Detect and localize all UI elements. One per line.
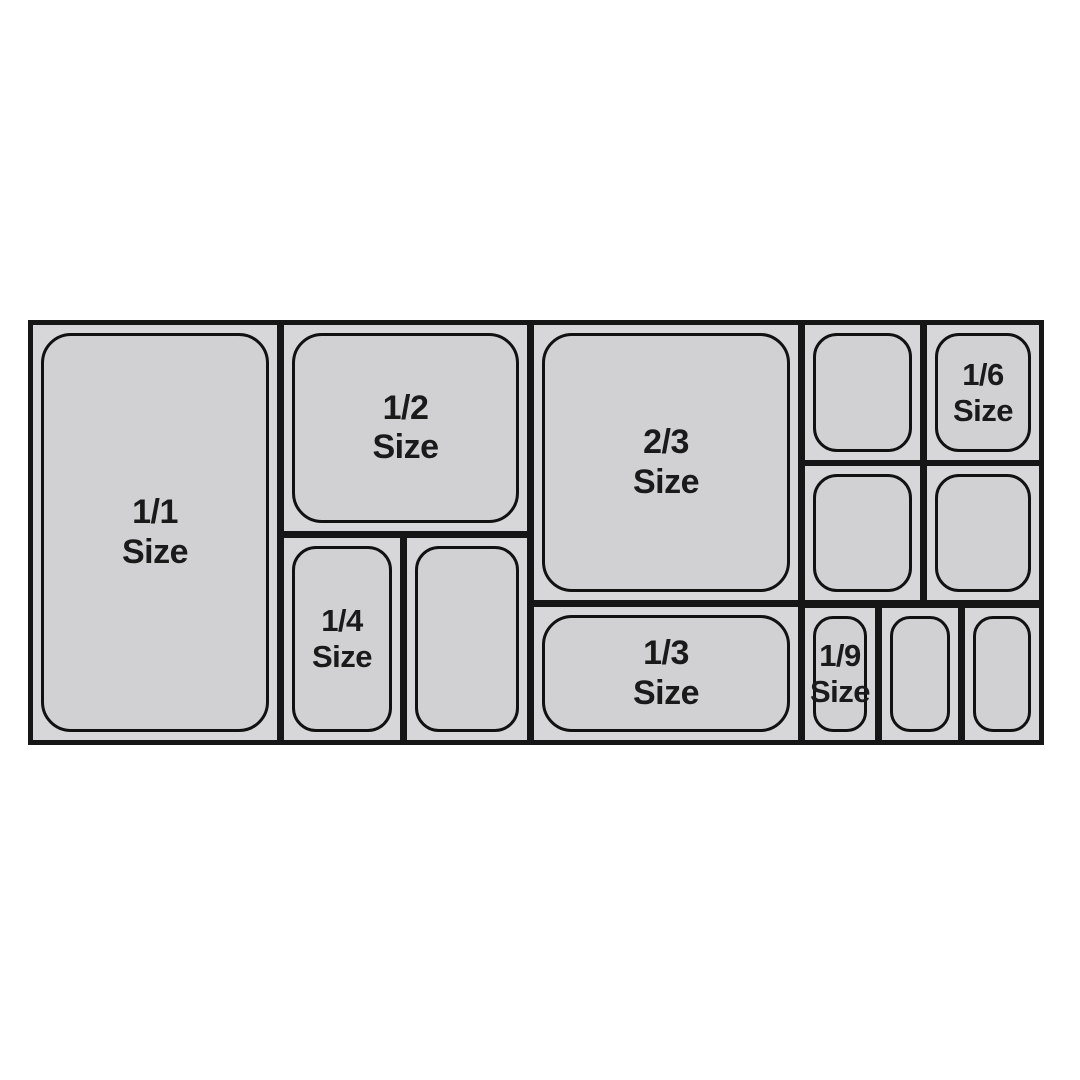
pan-1-9-word: Size <box>810 674 870 710</box>
pan-1-1: 1/1 Size <box>41 333 269 732</box>
pan-1-6-bottom-right <box>935 474 1031 592</box>
pan-1-6-top-left <box>813 333 912 452</box>
pan-cell-1-6-bottom-right <box>927 466 1039 600</box>
pan-1-1-fraction: 1/1 <box>122 493 188 532</box>
pan-1-6-fraction: 1/6 <box>953 357 1013 393</box>
pan-cell-1-9-labeled: 1/9 Size <box>805 608 875 740</box>
pan-1-2: 1/2 Size <box>292 333 519 523</box>
pan-cell-1-4-unlabeled <box>407 538 527 740</box>
pan-cell-1-4-labeled: 1/4 Size <box>284 538 400 740</box>
pan-cell-1-2: 1/2 Size <box>284 325 527 531</box>
pan-1-6-bottom-left <box>813 474 912 592</box>
pan-1-4-word: Size <box>312 639 372 675</box>
pan-cell-1-3: 1/3 Size <box>534 607 798 740</box>
pan-1-2-label: 1/2 Size <box>372 389 438 468</box>
pan-1-9-label: 1/9 Size <box>810 638 870 710</box>
pan-cell-1-6-top-left <box>805 325 920 460</box>
pan-1-4-fraction: 1/4 <box>312 603 372 639</box>
pan-1-6-word: Size <box>953 393 1013 429</box>
pan-1-4: 1/4 Size <box>292 546 392 732</box>
pan-cell-1-1: 1/1 Size <box>33 325 277 740</box>
pan-1-2-fraction: 1/2 <box>372 389 438 428</box>
pan-1-6: 1/6 Size <box>935 333 1031 452</box>
pan-1-3-fraction: 1/3 <box>633 634 699 673</box>
pan-cell-1-6-bottom-left <box>805 466 920 600</box>
pan-1-3: 1/3 Size <box>542 615 790 732</box>
pan-1-3-word: Size <box>633 674 699 713</box>
pan-1-9-right <box>973 616 1031 732</box>
pan-1-9-middle <box>890 616 950 732</box>
pan-1-4-label: 1/4 Size <box>312 603 372 675</box>
pan-size-diagram: 1/1 Size 1/2 Size 1/4 Size <box>28 320 1044 745</box>
pan-1-2-word: Size <box>372 428 438 467</box>
pan-1-9-fraction: 1/9 <box>810 638 870 674</box>
pan-cell-1-9-middle <box>882 608 958 740</box>
pan-1-1-label: 1/1 Size <box>122 493 188 572</box>
page: 1/1 Size 1/2 Size 1/4 Size <box>0 0 1080 1080</box>
pan-1-4-unlabeled <box>415 546 519 732</box>
pan-cell-2-3: 2/3 Size <box>534 325 798 600</box>
pan-2-3: 2/3 Size <box>542 333 790 592</box>
pan-cell-1-6-labeled: 1/6 Size <box>927 325 1039 460</box>
pan-2-3-fraction: 2/3 <box>633 423 699 462</box>
pan-cell-1-9-right <box>965 608 1039 740</box>
pan-1-1-word: Size <box>122 533 188 572</box>
pan-1-3-label: 1/3 Size <box>633 634 699 713</box>
pan-1-9: 1/9 Size <box>813 616 867 732</box>
pan-2-3-label: 2/3 Size <box>633 423 699 502</box>
pan-2-3-word: Size <box>633 463 699 502</box>
pan-1-6-label: 1/6 Size <box>953 357 1013 429</box>
